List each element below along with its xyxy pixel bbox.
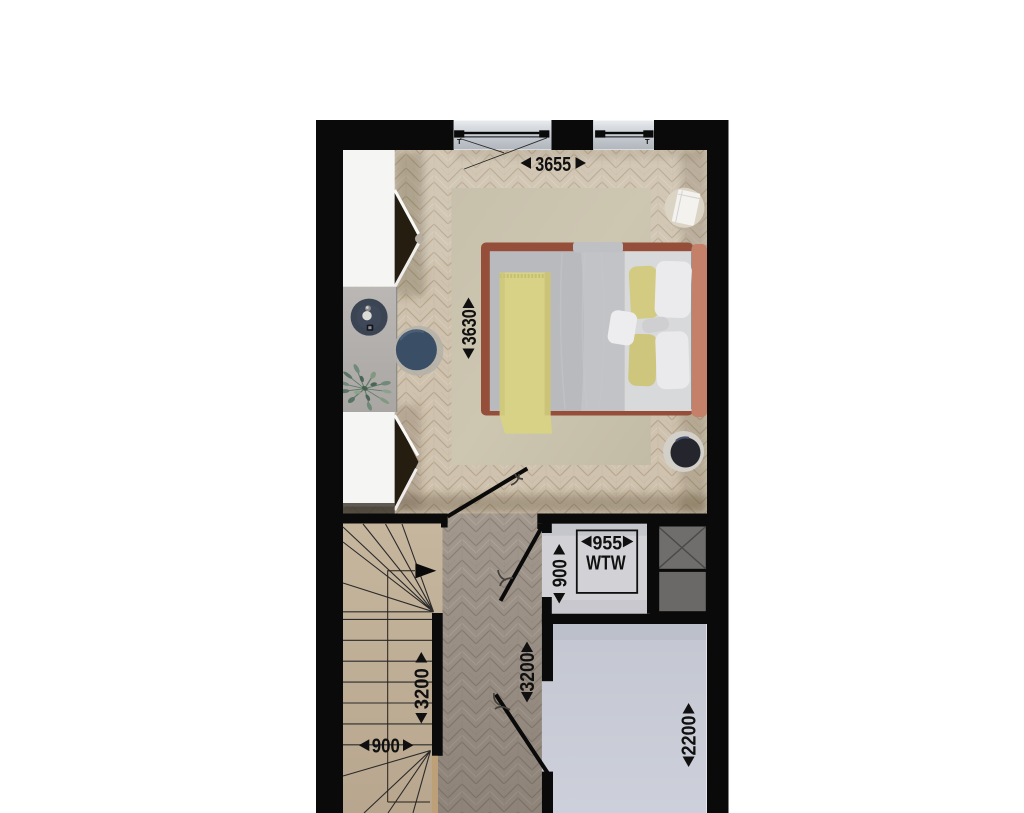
svg-text:900: 900	[549, 559, 571, 587]
svg-text:T: T	[457, 137, 462, 146]
svg-text:2200: 2200	[679, 716, 701, 756]
svg-text:T: T	[645, 137, 650, 146]
svg-text:WTW: WTW	[586, 553, 626, 575]
svg-text:3200: 3200	[517, 653, 539, 692]
svg-text:3200: 3200	[412, 668, 434, 709]
svg-text:900: 900	[372, 735, 400, 757]
svg-text:3655: 3655	[535, 154, 571, 176]
svg-text:955: 955	[593, 533, 623, 555]
svg-text:3630: 3630	[459, 309, 481, 345]
